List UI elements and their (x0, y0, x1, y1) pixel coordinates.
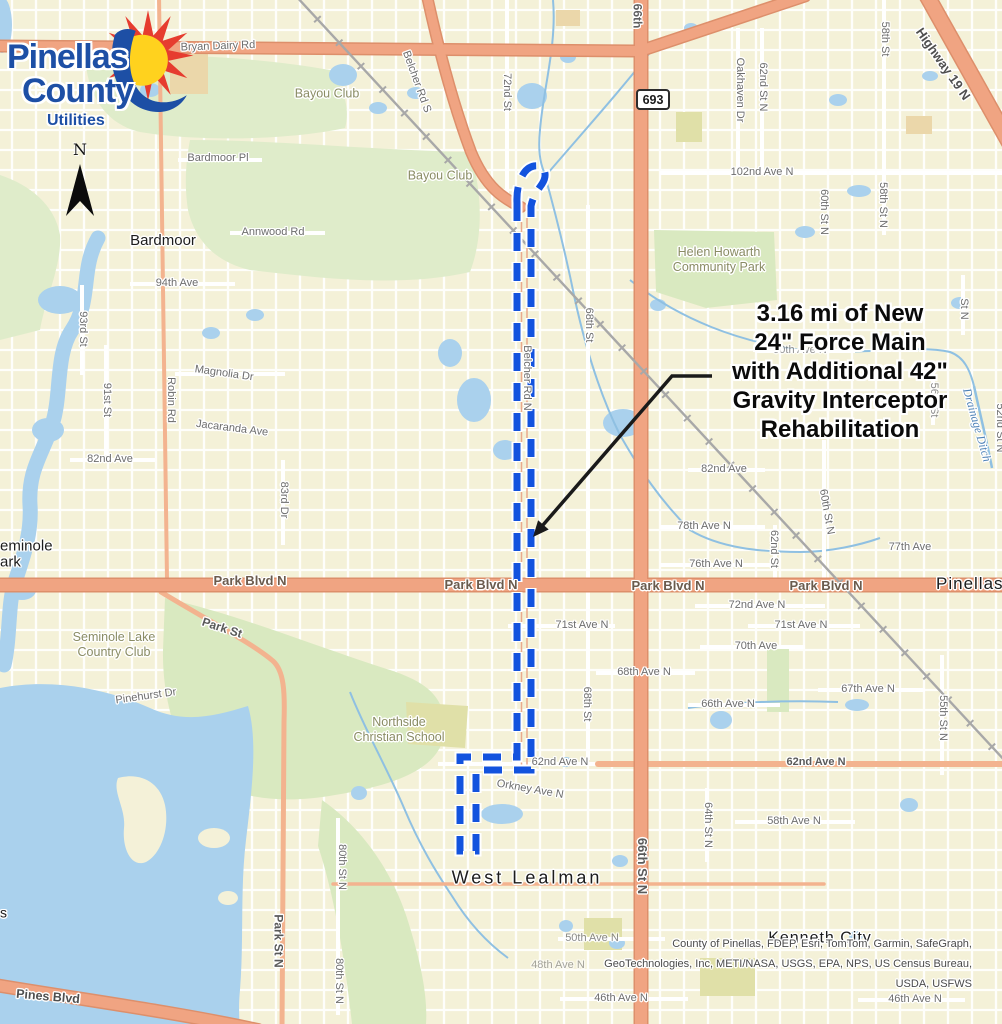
street-label: 46th Ave N (888, 994, 942, 1006)
attribution-line: County of Pinellas, FDEP, Esri, TomTom, … (604, 934, 972, 954)
street-label: 76th Ave N (689, 559, 743, 571)
street-label: 55th St N (936, 695, 948, 741)
street-label: Park Blvd N (632, 579, 705, 593)
lake-seminole (0, 684, 253, 1024)
highway-693-shield: 693 (636, 89, 670, 110)
annotation-line: 24" Force Main (672, 328, 1002, 357)
street-label: 77th Ave (889, 542, 932, 554)
street-label: Park St N (272, 914, 285, 967)
street-label: 60th St N (817, 189, 829, 235)
logo-text-utilities: Utilities (47, 112, 105, 130)
street-label: 62nd St (767, 530, 779, 568)
place-label: Bardmoor (130, 233, 196, 249)
street-label: 58th St N (876, 182, 888, 228)
annotation-line: 3.16 mi of New (672, 299, 1002, 328)
street-label: 71st Ave N (556, 620, 609, 632)
street-label: 58th St (878, 22, 890, 57)
street-label: 72nd Ave N (729, 600, 786, 612)
street-label: Belcher Rd N (520, 345, 532, 410)
annotation-line: Gravity Interceptor (672, 386, 1002, 415)
street-label: Park Blvd N (790, 579, 863, 593)
street-label: 82nd Ave (701, 464, 747, 476)
street-label: 80th St N (332, 958, 344, 1004)
street-label: 68th Ave N (617, 667, 671, 679)
street-label: 46th Ave N (594, 993, 648, 1005)
street-label: Bardmoor Pl (187, 153, 248, 165)
street-label: 62nd Ave N (786, 757, 845, 769)
attribution-line: GeoTechnologies, Inc, METI/NASA, USGS, E… (604, 954, 972, 974)
area-label: Bayou Club (295, 87, 360, 102)
street-label: 102nd Ave N (731, 167, 794, 179)
street-label: 70th Ave (735, 641, 778, 653)
map-container: Bryan Dairy RdBardmoor PlAnnwood Rd94th … (0, 0, 1002, 1024)
annotation-line: Rehabilitation (672, 415, 1002, 444)
street-label: 66th Ave N (701, 699, 755, 711)
map-attribution: County of Pinellas, FDEP, Esri, TomTom, … (604, 934, 972, 994)
street-label: 64th St N (701, 802, 713, 848)
street-label: 71st Ave N (775, 620, 828, 632)
area-label: Seminole LakeCountry Club (73, 630, 156, 660)
street-label: 93rd St (76, 311, 88, 346)
street-label: 83rd Dr (277, 482, 289, 519)
street-label: 78th Ave N (677, 521, 731, 533)
area-label: Helen HowarthCommunity Park (673, 245, 765, 275)
street-label: 62nd Ave N (532, 757, 589, 769)
lake-island (218, 891, 238, 905)
street-label: 91st St (100, 383, 112, 417)
street-label: 72nd St (500, 73, 512, 111)
place-label: West Lealman (452, 869, 603, 888)
area-label: NorthsideChristian School (353, 715, 444, 745)
street-label: 94th Ave (156, 278, 199, 290)
street-label: 80th St N (335, 844, 347, 890)
street-label: Oakhaven Dr (733, 58, 745, 123)
area-label: Bayou Club (408, 169, 473, 184)
north-arrow-label: N (73, 140, 87, 159)
north-arrow: N (55, 140, 105, 225)
street-label: Park Blvd N (214, 574, 287, 588)
street-label: 66th (631, 4, 644, 29)
place-label: Pinellas Park (936, 575, 1002, 593)
street-label: Park Blvd N (445, 578, 518, 592)
lake-island (198, 828, 230, 848)
agency-logo: Pinellas County Utilities (0, 0, 230, 150)
street-label: 82nd Ave (87, 454, 133, 466)
street-label: 66th St N (635, 838, 649, 894)
annotation-line: with Additional 42" (672, 357, 1002, 386)
street-label: Annwood Rd (242, 227, 305, 239)
place-label: s (0, 906, 7, 921)
street-label: 68th St (580, 687, 592, 722)
street-label: Robin Rd (164, 377, 176, 423)
street-label: 48th Ave N (531, 960, 585, 972)
street-label: 58th Ave N (767, 816, 821, 828)
project-annotation: 3.16 mi of New 24" Force Main with Addit… (672, 299, 1002, 444)
street-label: 68th St (582, 308, 594, 343)
street-label: 62nd St N (756, 63, 768, 112)
logo-text-county: County (22, 72, 133, 111)
attribution-line: USDA, USFWS (604, 974, 972, 994)
place-label: SeminolePark (0, 538, 53, 570)
street-label: 67th Ave N (841, 684, 895, 696)
